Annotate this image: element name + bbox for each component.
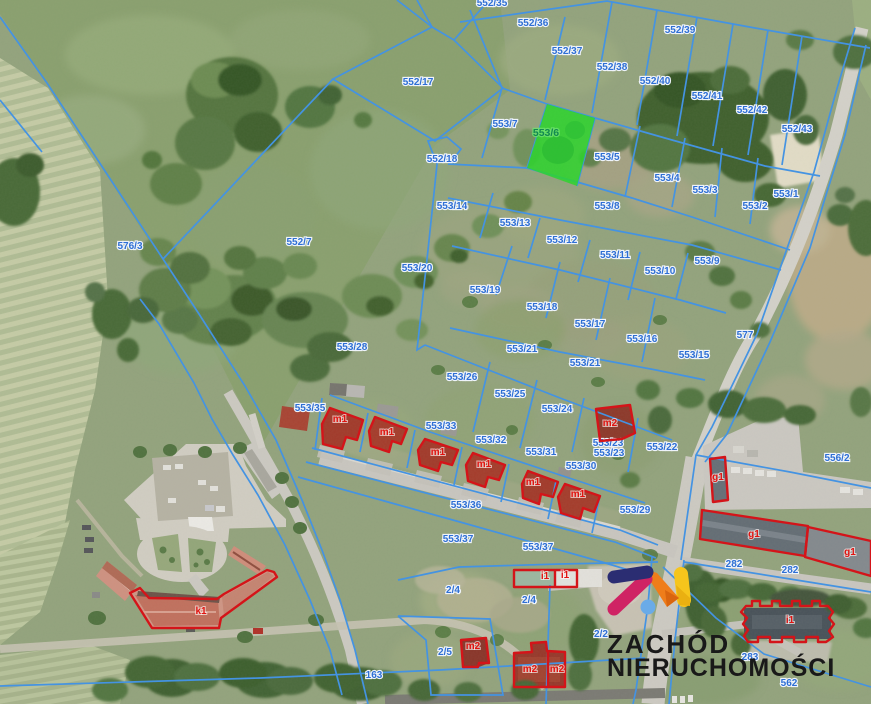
svg-text:553/7: 553/7 [492, 119, 517, 130]
svg-text:m1: m1 [526, 477, 541, 488]
svg-text:553/5: 553/5 [594, 152, 619, 163]
svg-text:553/18: 553/18 [527, 302, 558, 313]
svg-text:m2: m2 [466, 641, 481, 652]
svg-text:553/8: 553/8 [594, 201, 619, 212]
svg-text:553/12: 553/12 [547, 235, 578, 246]
svg-text:553/6: 553/6 [533, 127, 559, 139]
svg-text:g1: g1 [844, 547, 856, 558]
svg-text:577: 577 [737, 330, 754, 341]
svg-text:2/4: 2/4 [446, 585, 460, 596]
svg-text:556/2: 556/2 [824, 453, 849, 464]
svg-text:553/31: 553/31 [526, 447, 557, 458]
svg-text:553/35: 553/35 [295, 403, 326, 414]
svg-text:553/1: 553/1 [773, 189, 798, 200]
svg-text:553/2: 553/2 [742, 201, 767, 212]
svg-text:576/3: 576/3 [117, 241, 142, 252]
svg-text:i1: i1 [786, 615, 795, 626]
svg-text:553/4: 553/4 [654, 173, 679, 184]
svg-text:553/13: 553/13 [500, 218, 531, 229]
svg-text:552/42: 552/42 [737, 105, 768, 116]
svg-text:553/26: 553/26 [447, 372, 478, 383]
svg-text:552/43: 552/43 [782, 124, 813, 135]
svg-text:553/15: 553/15 [679, 350, 710, 361]
svg-text:552/37: 552/37 [552, 46, 583, 57]
svg-text:553/24: 553/24 [542, 404, 573, 415]
svg-text:g1: g1 [748, 529, 760, 540]
svg-text:553/36: 553/36 [451, 500, 482, 511]
svg-text:NIERUCHOMOŚCI: NIERUCHOMOŚCI [607, 652, 835, 682]
svg-text:m1: m1 [571, 489, 586, 500]
svg-text:m1: m1 [380, 427, 395, 438]
svg-text:i1: i1 [561, 570, 570, 581]
svg-text:553/21: 553/21 [570, 358, 601, 369]
svg-text:552/17: 552/17 [403, 77, 434, 88]
svg-text:m1: m1 [333, 414, 348, 425]
svg-text:m1: m1 [477, 459, 492, 470]
svg-text:553/21: 553/21 [507, 344, 538, 355]
svg-text:m2: m2 [550, 664, 565, 675]
svg-text:552/41: 552/41 [692, 91, 723, 102]
svg-text:552/7: 552/7 [286, 237, 311, 248]
svg-text:m2: m2 [523, 664, 538, 675]
svg-text:553/23: 553/23 [594, 448, 625, 459]
svg-text:553/20: 553/20 [402, 263, 433, 274]
svg-text:553/28: 553/28 [337, 342, 368, 353]
svg-text:552/36: 552/36 [518, 18, 549, 29]
svg-text:553/25: 553/25 [495, 389, 526, 400]
svg-text:553/3: 553/3 [692, 185, 717, 196]
svg-text:282: 282 [726, 559, 743, 570]
svg-text:2/5: 2/5 [438, 647, 452, 658]
svg-text:552/35: 552/35 [477, 0, 508, 9]
svg-text:g1: g1 [712, 472, 724, 483]
svg-text:553/22: 553/22 [647, 442, 678, 453]
svg-text:553/11: 553/11 [600, 250, 630, 261]
svg-text:552/38: 552/38 [597, 62, 628, 73]
svg-text:2/4: 2/4 [522, 595, 536, 606]
svg-text:553/37: 553/37 [523, 542, 554, 553]
svg-text:i1: i1 [541, 571, 550, 582]
svg-text:553/17: 553/17 [575, 319, 606, 330]
svg-text:553/10: 553/10 [645, 266, 676, 277]
svg-text:m1: m1 [431, 447, 446, 458]
svg-text:553/16: 553/16 [627, 334, 658, 345]
svg-text:553/37: 553/37 [443, 534, 474, 545]
svg-text:553/19: 553/19 [470, 285, 501, 296]
svg-text:282: 282 [782, 565, 799, 576]
svg-text:553/32: 553/32 [476, 435, 507, 446]
svg-text:k1: k1 [195, 606, 207, 617]
svg-text:552/40: 552/40 [640, 76, 671, 87]
svg-text:553/29: 553/29 [620, 505, 651, 516]
svg-text:553/14: 553/14 [437, 201, 468, 212]
svg-text:m2: m2 [603, 418, 618, 429]
svg-text:552/18: 552/18 [427, 154, 458, 165]
svg-text:553/33: 553/33 [426, 421, 457, 432]
svg-text:553/30: 553/30 [566, 461, 597, 472]
svg-text:553/9: 553/9 [694, 256, 719, 267]
svg-text:552/39: 552/39 [665, 25, 696, 36]
svg-text:163: 163 [366, 670, 383, 681]
